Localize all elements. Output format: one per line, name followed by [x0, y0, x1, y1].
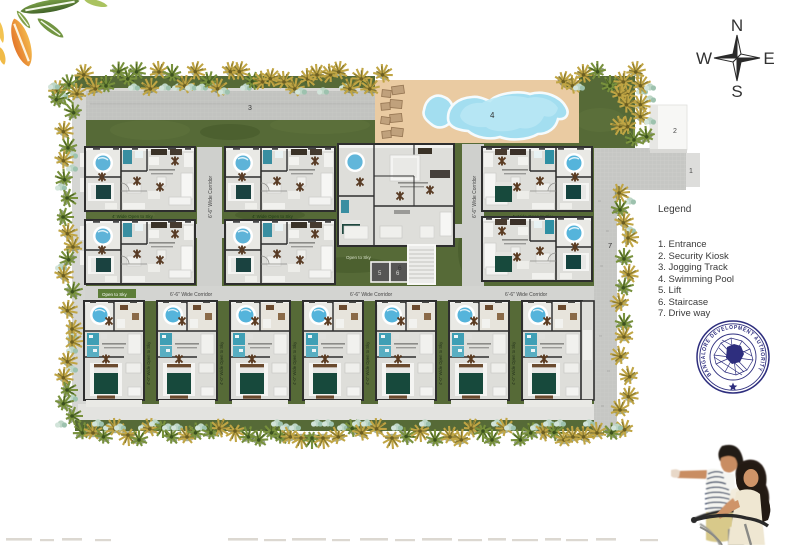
svg-text:6'-6" Wide Corridor: 6'-6" Wide Corridor	[350, 292, 393, 298]
svg-text:2. Security Kiosk: 2. Security Kiosk	[658, 251, 729, 262]
svg-text:2: 2	[673, 128, 677, 135]
svg-text:6. Staircase: 6. Staircase	[658, 297, 708, 308]
svg-text:4'-0" Wide Open to Sky: 4'-0" Wide Open to Sky	[292, 341, 297, 385]
svg-text:S: S	[731, 82, 742, 101]
svg-text:4: 4	[490, 111, 495, 120]
svg-text:4'-0" Wide Open to Sky: 4'-0" Wide Open to Sky	[146, 341, 151, 385]
svg-text:N: N	[731, 16, 743, 35]
svg-text:6'-6" Wide Corridor: 6'-6" Wide Corridor	[170, 292, 213, 298]
svg-text:3. Jogging Track: 3. Jogging Track	[658, 262, 728, 273]
svg-text:6: 6	[398, 265, 402, 272]
svg-text:E: E	[763, 49, 774, 68]
svg-text:1. Entrance: 1. Entrance	[658, 239, 707, 250]
svg-text:6'-6" Wide Corridor: 6'-6" Wide Corridor	[208, 175, 214, 218]
svg-text:5. Lift: 5. Lift	[658, 285, 682, 296]
svg-text:4' Wide Open to Sky: 4' Wide Open to Sky	[252, 214, 294, 219]
svg-text:7. Drive way: 7. Drive way	[658, 308, 711, 319]
svg-text:1: 1	[689, 168, 693, 175]
svg-text:4'-0" Wide Open to Sky: 4'-0" Wide Open to Sky	[219, 341, 224, 385]
svg-text:Open to Sky: Open to Sky	[102, 292, 128, 297]
svg-text:6'-6" Wide Corridor: 6'-6" Wide Corridor	[472, 175, 478, 218]
svg-text:4'-0" Wide Open to Sky: 4'-0" Wide Open to Sky	[511, 341, 516, 385]
svg-text:4'-0" Wide Open to Sky: 4'-0" Wide Open to Sky	[365, 341, 370, 385]
svg-text:7: 7	[608, 241, 612, 250]
svg-text:4'-0" Wide Open to Sky: 4'-0" Wide Open to Sky	[438, 341, 443, 385]
svg-text:Open to Sky: Open to Sky	[346, 255, 372, 260]
svg-text:Legend: Legend	[658, 204, 691, 215]
svg-text:W: W	[696, 49, 712, 68]
svg-text:4. Swimming Pool: 4. Swimming Pool	[658, 274, 734, 285]
svg-text:4' Wide Open to Sky: 4' Wide Open to Sky	[112, 214, 154, 219]
svg-text:6'-6" Wide Corridor: 6'-6" Wide Corridor	[505, 292, 548, 298]
svg-text:3: 3	[248, 105, 252, 112]
